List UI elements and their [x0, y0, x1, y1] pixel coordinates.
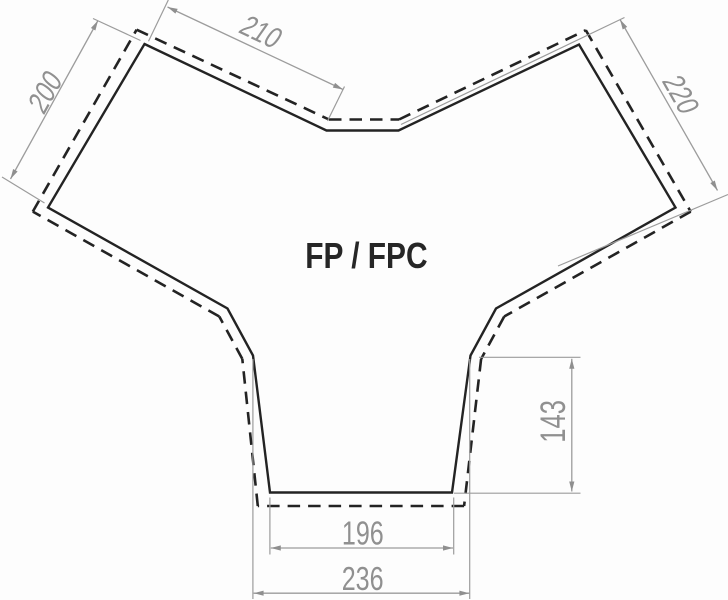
svg-text:236: 236: [342, 561, 384, 598]
svg-text:FP / FPC: FP / FPC: [305, 236, 427, 276]
svg-text:143: 143: [534, 400, 573, 443]
svg-text:196: 196: [342, 515, 384, 552]
